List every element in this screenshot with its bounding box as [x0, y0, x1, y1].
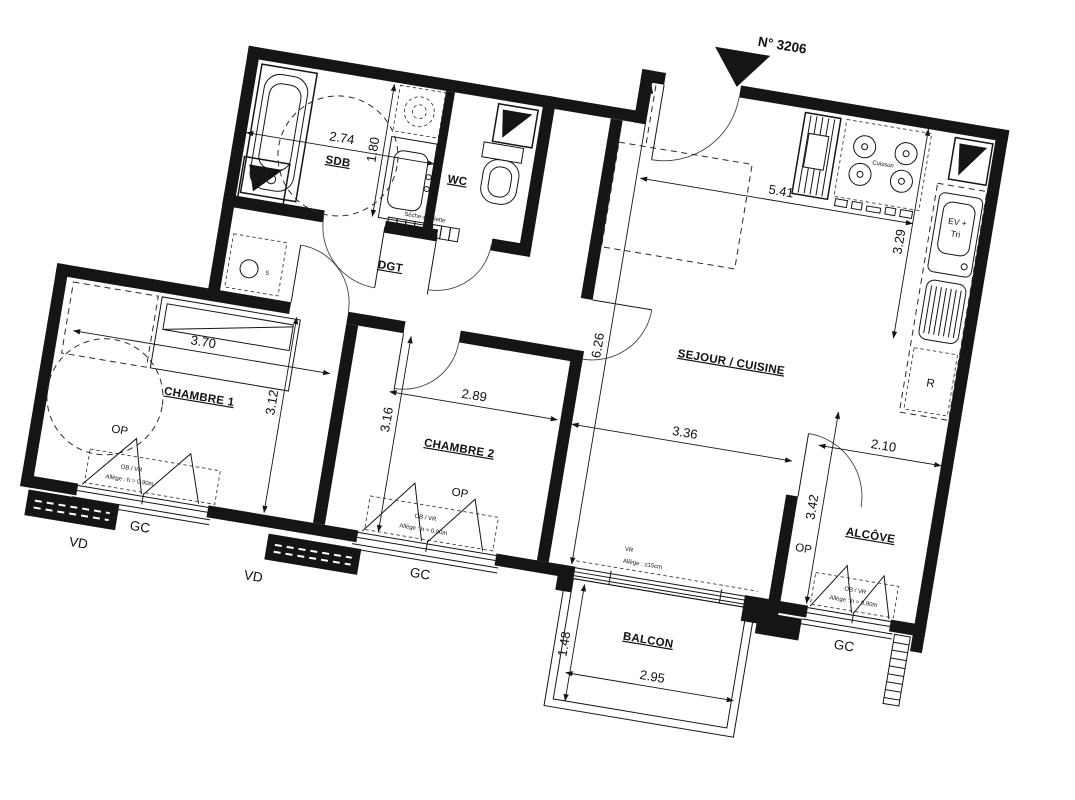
sink-label-2: Tri: [950, 228, 961, 239]
floor-plan-page: N° 3206: [0, 0, 1075, 800]
floor-plan-drawing: N° 3206: [0, 0, 1075, 800]
vd-label: VD: [68, 534, 89, 552]
vd-label: VD: [243, 567, 264, 585]
